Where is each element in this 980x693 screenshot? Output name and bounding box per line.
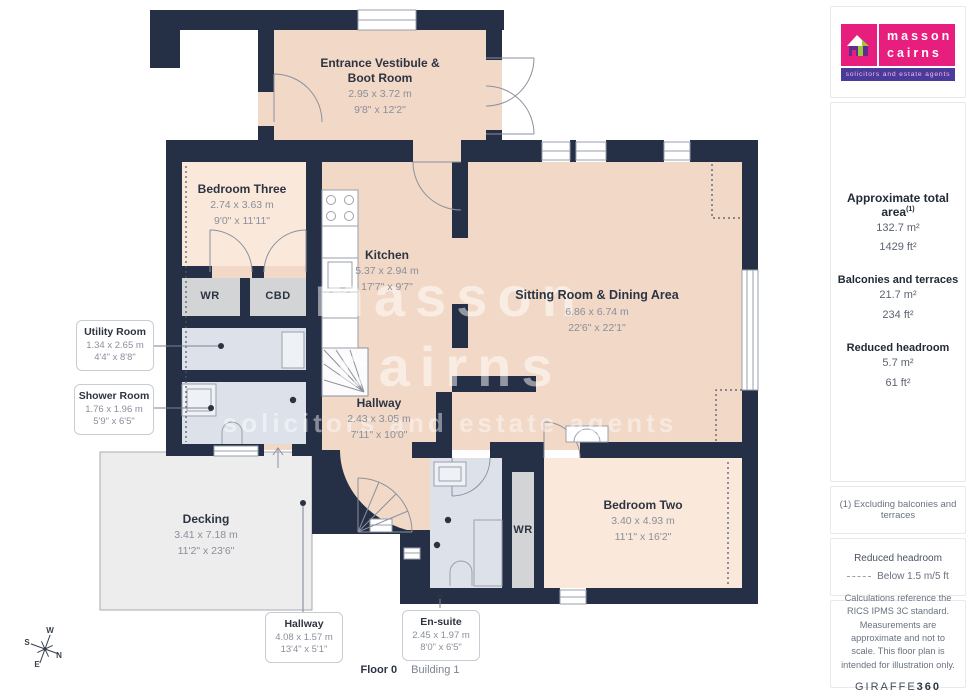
agency-name-line1: masson [887,28,955,44]
svg-text:solicitors and estate agents: solicitors and estate agents [223,408,677,438]
agency-logo: masson cairns solicitors and estate agen… [841,24,955,81]
agency-name-line2: cairns [887,45,955,61]
floorplan-page: masson cairns solicitors and estate agen… [0,0,980,693]
agency-name: masson cairns [879,24,955,66]
callout-name: Shower Room [78,390,150,404]
svg-text:masson: masson [314,265,586,328]
footnote-card: (1) Excluding balconies and terraces [830,486,966,534]
total-area-m2: 132.7 m² [831,219,965,239]
svg-text:N: N [56,651,62,660]
floor-building-label: Floor 0Building 1 [0,664,820,676]
svg-text:cairns: cairns [338,335,563,398]
balconies-label: Balconies and terraces [831,274,965,286]
callout-dim-imperial: 8'0" x 6'5" [406,642,476,655]
reduced-headroom-label: Reduced headroom [831,342,965,354]
legend-title: Reduced headroom [854,553,942,564]
callout-en-suite: En-suite 2.45 x 1.97 m 8'0" x 6'5" [402,610,480,661]
reduced-headroom-m2: 5.7 m² [831,354,965,374]
reduced-headroom-ft2: 61 ft² [831,374,965,394]
svg-text:S: S [24,638,30,647]
callout-shower-room: Shower Room 1.76 x 1.96 m 5'9" x 6'5" [74,384,154,435]
legend-card: Reduced headroom Below 1.5 m/5 ft [830,538,966,596]
legend-entry: Below 1.5 m/5 ft [877,571,949,582]
callout-dim-metric: 4.08 x 1.57 m [269,632,339,645]
footnote-marker: (1) [906,206,915,213]
callout-name: Utility Room [80,326,150,340]
area-summary-card: Approximate total area(1) 132.7 m² 1429 … [830,102,966,482]
callout-dim-metric: 1.76 x 1.96 m [78,404,150,417]
callout-dim-imperial: 13'4" x 5'1" [269,644,339,657]
compass-icon: W S N E [24,626,64,669]
callout-dim-imperial: 4'4" x 8'8" [80,352,150,365]
provider-name: GIRAFFE [855,681,917,693]
footnote-text: (1) Excluding balconies and terraces [837,499,959,521]
building-label: Building 1 [411,664,459,676]
agency-tagline: solicitors and estate agents [841,68,955,81]
closet-label-wr-lower: WR [506,524,540,536]
provider-name-bold: 360 [917,681,941,693]
floor-label: Floor 0 [361,664,398,676]
house-icon [841,24,877,66]
closet-label-wr-upper: WR [190,290,230,302]
info-sidebar: masson cairns solicitors and estate agen… [830,6,966,688]
total-area-ft2: 1429 ft² [831,238,965,258]
balconies-m2: 21.7 m² [831,286,965,306]
total-area-label: Approximate total area [847,191,949,219]
callout-dim-imperial: 5'9" x 6'5" [78,416,150,429]
callout-name: En-suite [406,616,476,630]
callout-name: Hallway [269,618,339,632]
closet-label-cbd: CBD [256,290,300,302]
dashed-line-icon [847,576,871,577]
callout-dim-metric: 2.45 x 1.97 m [406,630,476,643]
callout-hallway: Hallway 4.08 x 1.57 m 13'4" x 5'1" [265,612,343,663]
callout-dim-metric: 1.34 x 2.65 m [80,340,150,353]
balconies-ft2: 234 ft² [831,306,965,326]
provider-logo: GIRAFFE360 [855,680,941,693]
disclaimer-text: Calculations reference the RICS IPMS 3C … [839,592,957,672]
svg-text:W: W [46,626,54,635]
total-area-heading: Approximate total area(1) [831,191,965,219]
disclaimer-card: Calculations reference the RICS IPMS 3C … [830,600,966,688]
callout-utility-room: Utility Room 1.34 x 2.65 m 4'4" x 8'8" [76,320,154,371]
agency-logo-card: masson cairns solicitors and estate agen… [830,6,966,98]
